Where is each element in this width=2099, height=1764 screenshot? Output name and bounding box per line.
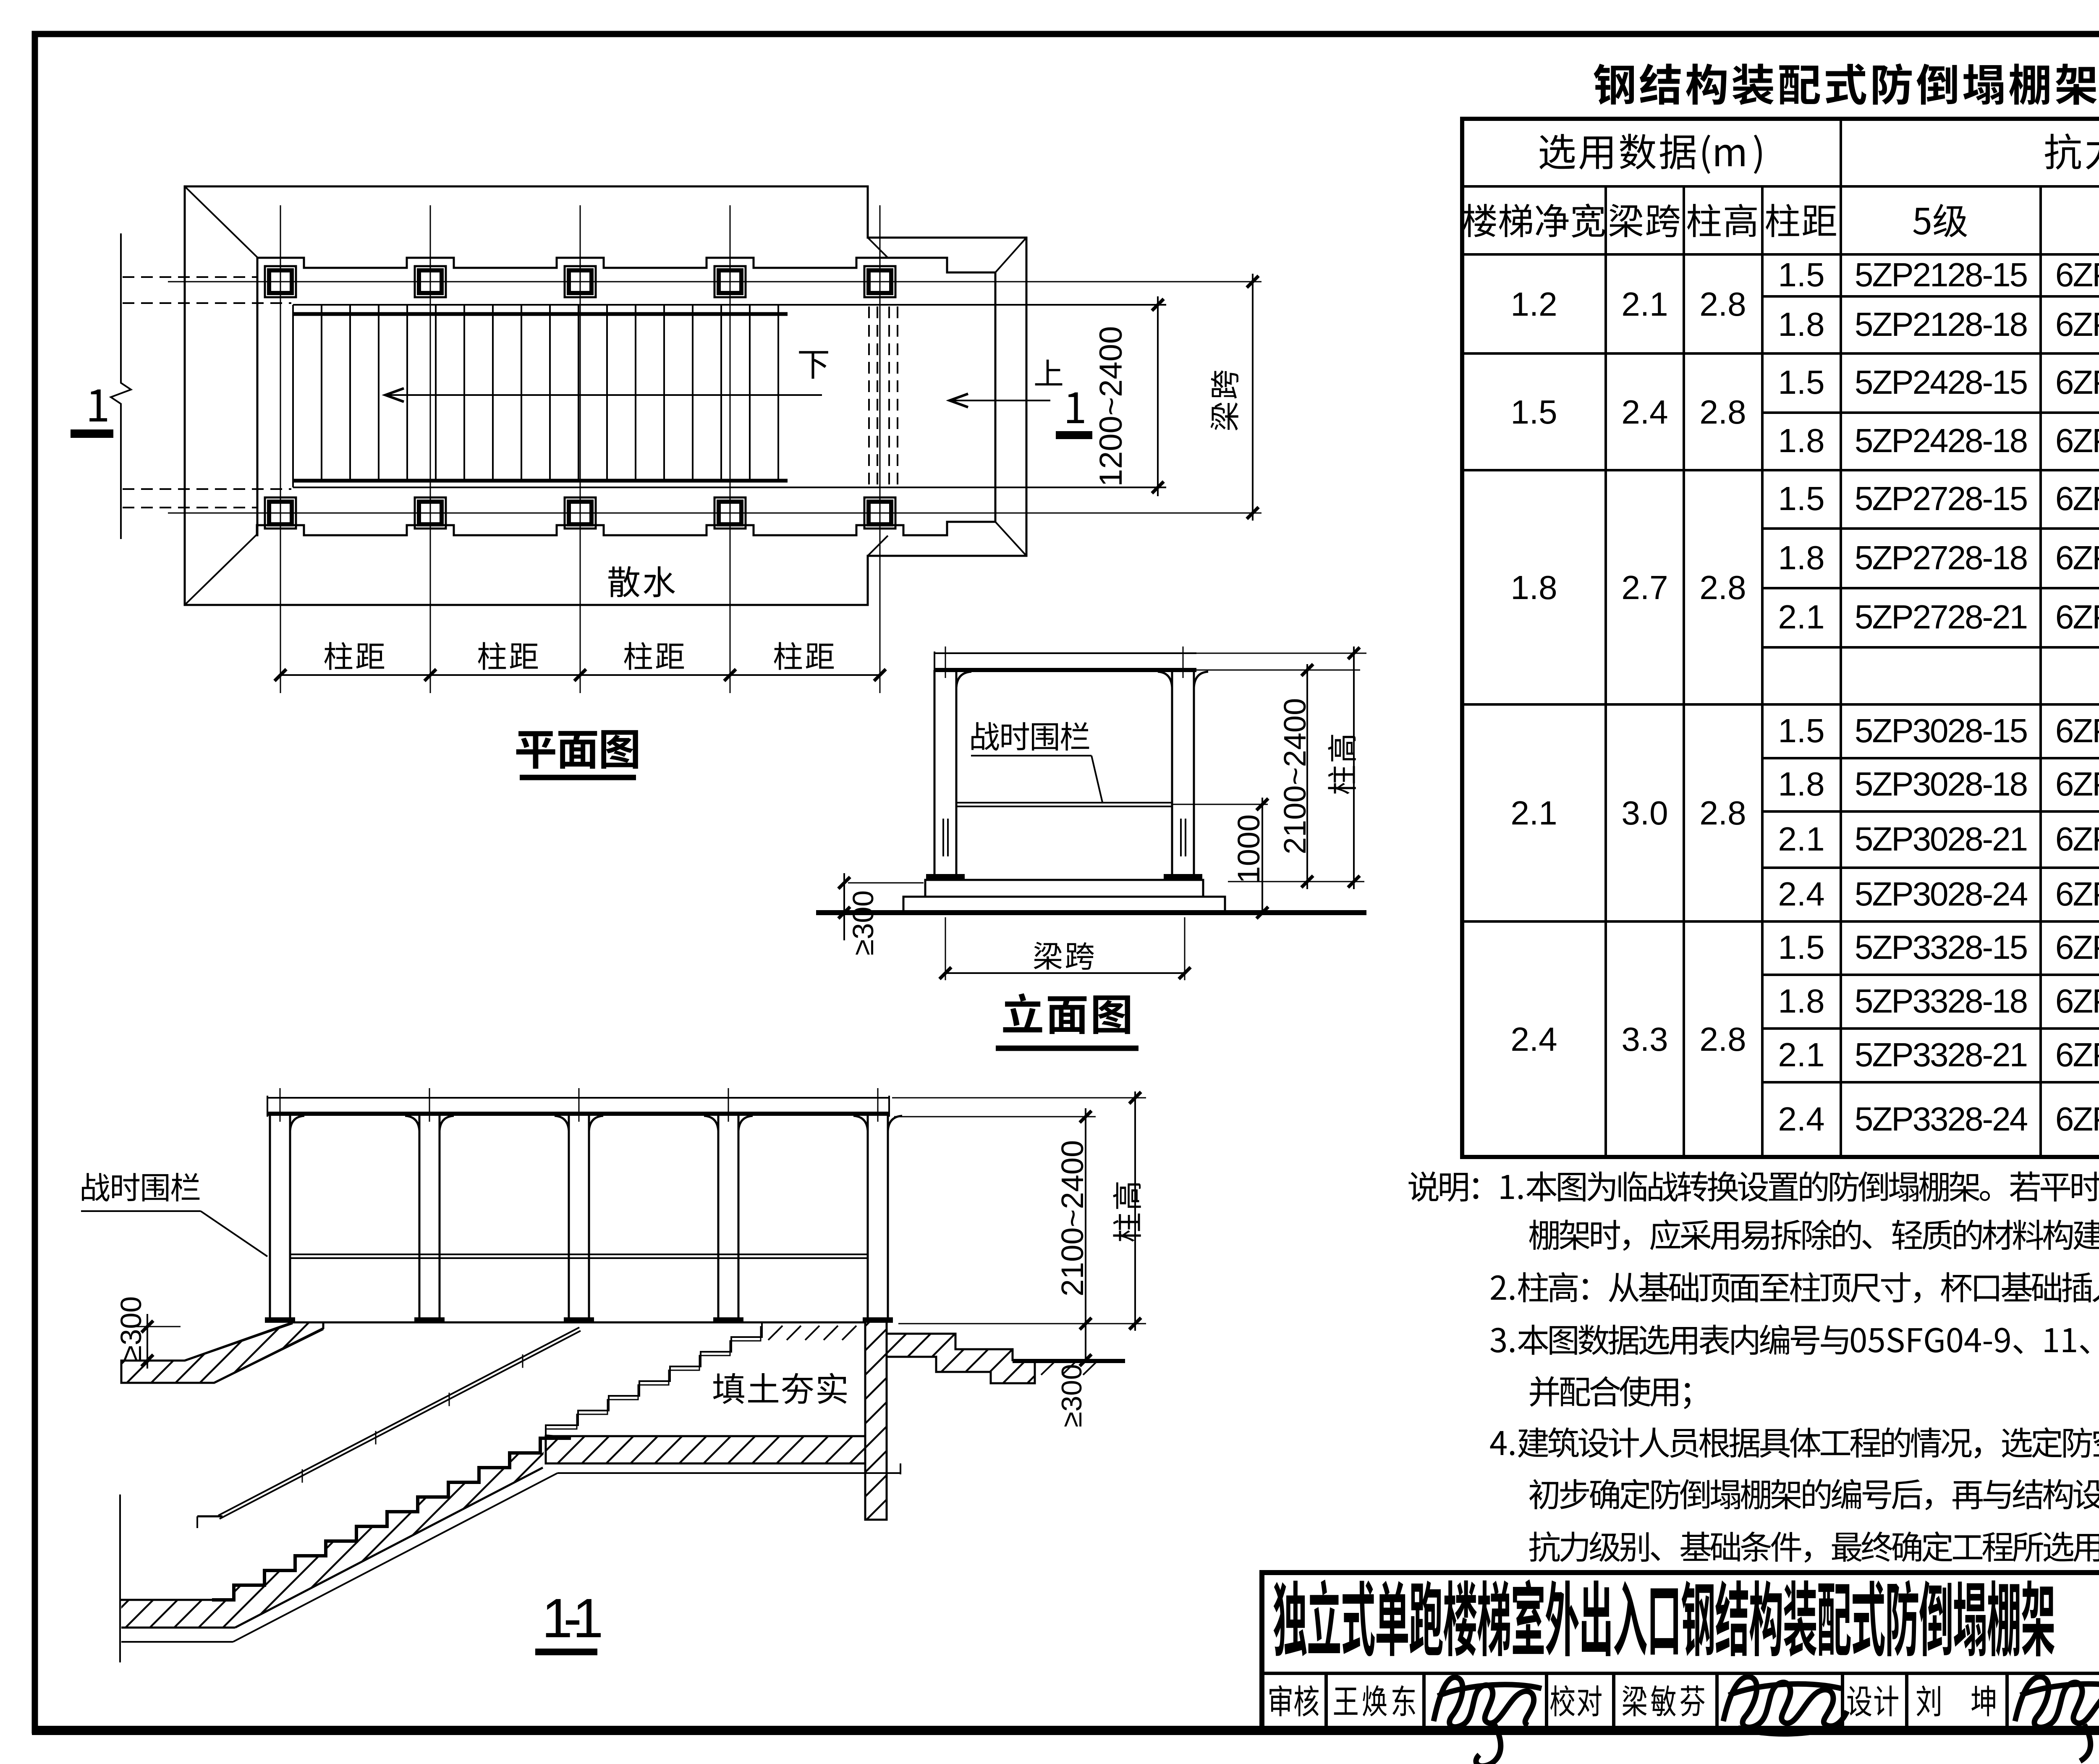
svg-text:6ZP3328-15: 6ZP3328-15 [2055,929,2099,966]
svg-text:6ZP3028-24: 6ZP3028-24 [2055,875,2099,913]
svg-text:2.8: 2.8 [1699,1021,1746,1058]
svg-text:6ZP3028-21: 6ZP3028-21 [2055,820,2099,858]
svg-text:5ZP3328-24: 5ZP3328-24 [1855,1100,2028,1138]
svg-text:2.8: 2.8 [1699,393,1746,431]
svg-text:2100~2400: 2100~2400 [1277,698,1312,854]
svg-text:1.8: 1.8 [1778,422,1824,459]
svg-text:2.1: 2.1 [1778,1036,1824,1073]
svg-text:6ZP2428-15: 6ZP2428-15 [2055,364,2099,401]
svg-text:2.1: 2.1 [1510,794,1557,832]
svg-text:5ZP3028-18: 5ZP3028-18 [1855,765,2027,803]
svg-text:5ZP2728-18: 5ZP2728-18 [1855,539,2027,576]
svg-text:6ZP2728-18: 6ZP2728-18 [2055,539,2099,576]
svg-text:6ZP3328-21: 6ZP3328-21 [2055,1036,2099,1073]
svg-text:≥300: ≥300 [115,1296,147,1361]
svg-text:6ZP2728-15: 6ZP2728-15 [2055,480,2099,517]
svg-text:2.4: 2.4 [1778,1100,1824,1138]
svg-text:6ZP2728-21: 6ZP2728-21 [2055,598,2099,636]
svg-text:2.8: 2.8 [1699,794,1746,832]
svg-text:2100~2400: 2100~2400 [1055,1140,1090,1296]
svg-text:1.8: 1.8 [1778,539,1824,576]
svg-text:1.8: 1.8 [1778,982,1824,1020]
svg-text:2.8: 2.8 [1699,569,1746,606]
svg-text:1000: 1000 [1231,814,1266,884]
svg-text:6ZP2128-18: 6ZP2128-18 [2055,306,2099,343]
svg-text:5ZP2128-18: 5ZP2128-18 [1855,306,2027,343]
svg-text:3.3: 3.3 [1621,1021,1668,1058]
svg-text:1.5: 1.5 [1778,256,1824,293]
svg-text:1.5: 1.5 [1778,364,1824,401]
svg-text:5ZP3328-18: 5ZP3328-18 [1855,982,2027,1020]
svg-text:5ZP2728-21: 5ZP2728-21 [1855,598,2027,636]
svg-text:6ZP2128-15: 6ZP2128-15 [2055,256,2099,293]
svg-text:1.2: 1.2 [1510,285,1557,323]
svg-text:6ZP2428-18: 6ZP2428-18 [2055,422,2099,459]
svg-text:1-1: 1-1 [542,1587,601,1649]
svg-text:1.8: 1.8 [1510,569,1557,606]
svg-text:2.4: 2.4 [1621,393,1668,431]
svg-text:2.7: 2.7 [1621,569,1668,606]
svg-text:2.8: 2.8 [1699,285,1746,323]
svg-text:1.5: 1.5 [1778,712,1824,749]
svg-text:2.4: 2.4 [1510,1021,1557,1058]
svg-text:6ZP3328-24: 6ZP3328-24 [2055,1100,2099,1138]
svg-text:1.5: 1.5 [1778,480,1824,517]
svg-text:2.4: 2.4 [1778,875,1824,913]
svg-text:1.8: 1.8 [1778,306,1824,343]
svg-text:5ZP3028-15: 5ZP3028-15 [1855,712,2027,749]
svg-text:5ZP2128-15: 5ZP2128-15 [1855,256,2027,293]
svg-text:5ZP3028-24: 5ZP3028-24 [1855,875,2028,913]
svg-text:1200~2400: 1200~2400 [1093,326,1129,487]
svg-text:1.5: 1.5 [1510,393,1557,431]
svg-text:1.8: 1.8 [1778,765,1824,803]
svg-text:2.1: 2.1 [1778,598,1824,636]
svg-text:6ZP3328-18: 6ZP3328-18 [2055,982,2099,1020]
svg-text:5ZP3328-21: 5ZP3328-21 [1855,1036,2027,1073]
svg-text:5ZP2428-15: 5ZP2428-15 [1855,364,2027,401]
svg-text:1.5: 1.5 [1778,929,1824,966]
svg-text:2.1: 2.1 [1778,820,1824,858]
svg-text:6ZP3028-18: 6ZP3028-18 [2055,765,2099,803]
svg-text:5ZP2428-18: 5ZP2428-18 [1855,422,2027,459]
svg-text:≥300: ≥300 [1056,1364,1088,1427]
svg-text:6ZP3028-15: 6ZP3028-15 [2055,712,2099,749]
svg-text:≥300: ≥300 [847,890,879,955]
svg-text:5ZP2728-15: 5ZP2728-15 [1855,480,2027,517]
svg-text:5ZP3328-15: 5ZP3328-15 [1855,929,2027,966]
svg-text:2.1: 2.1 [1621,285,1668,323]
svg-text:3.0: 3.0 [1621,794,1668,832]
svg-text:5ZP3028-21: 5ZP3028-21 [1855,820,2027,858]
